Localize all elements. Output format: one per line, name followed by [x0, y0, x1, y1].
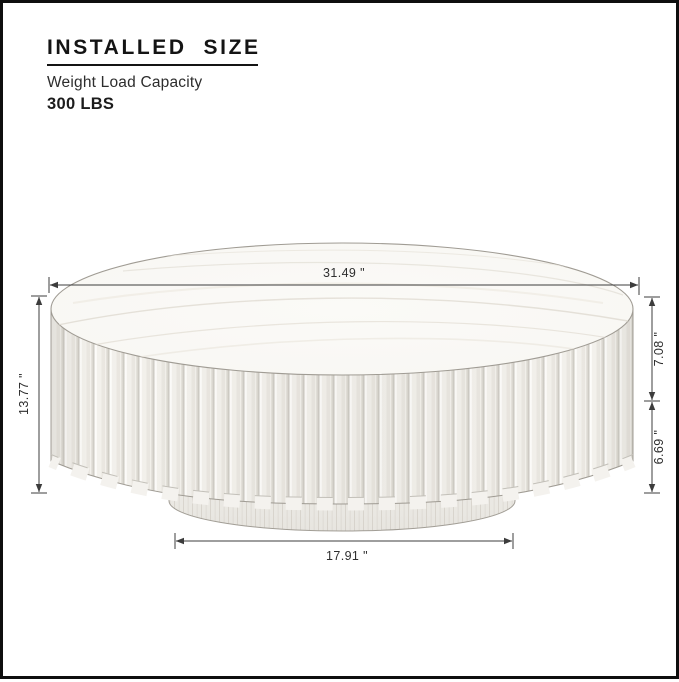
dim-label-base-diameter: 17.91 ": [326, 549, 368, 563]
dim-label-top-section-height: 7.08 ": [652, 332, 666, 367]
page-title: INSTALLED SIZE: [47, 36, 261, 59]
dim-label-top-diameter: 31.49 ": [323, 266, 365, 280]
title-underline: [47, 64, 258, 66]
dimension-base-diameter: 17.91 ": [175, 533, 513, 563]
weight-capacity-value: 300 LBS: [47, 95, 261, 114]
dimension-base-section-height: 6.69 ": [644, 402, 666, 493]
image-border-frame: INSTALLED SIZE Weight Load Capacity 300 …: [0, 0, 679, 679]
table-top-wood-grain: [51, 243, 633, 375]
dimension-overall-height: 13.77 ": [17, 296, 47, 493]
table-top: [51, 243, 633, 375]
weight-capacity-label: Weight Load Capacity: [47, 74, 261, 92]
dimension-top-section-height: 7.08 ": [644, 297, 666, 401]
dim-label-base-section-height: 6.69 ": [652, 430, 666, 465]
header-block: INSTALLED SIZE Weight Load Capacity 300 …: [47, 36, 261, 114]
dim-label-overall-height: 13.77 ": [17, 373, 31, 415]
